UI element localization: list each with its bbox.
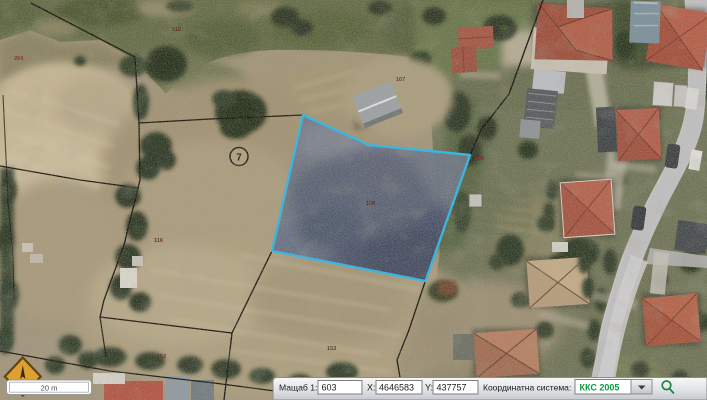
svg-text:603: 603 xyxy=(322,383,337,393)
svg-text:ККС 2005: ККС 2005 xyxy=(580,383,620,393)
svg-text:Мащаб 1:: Мащаб 1: xyxy=(279,383,317,393)
svg-text:Координатна система:: Координатна система: xyxy=(483,383,571,393)
svg-text:4646583: 4646583 xyxy=(379,383,414,393)
svg-text:Y:: Y: xyxy=(425,383,433,393)
svg-text:20 m: 20 m xyxy=(41,384,58,393)
svg-text:437757: 437757 xyxy=(437,383,467,393)
svg-text:X:: X: xyxy=(367,383,376,393)
